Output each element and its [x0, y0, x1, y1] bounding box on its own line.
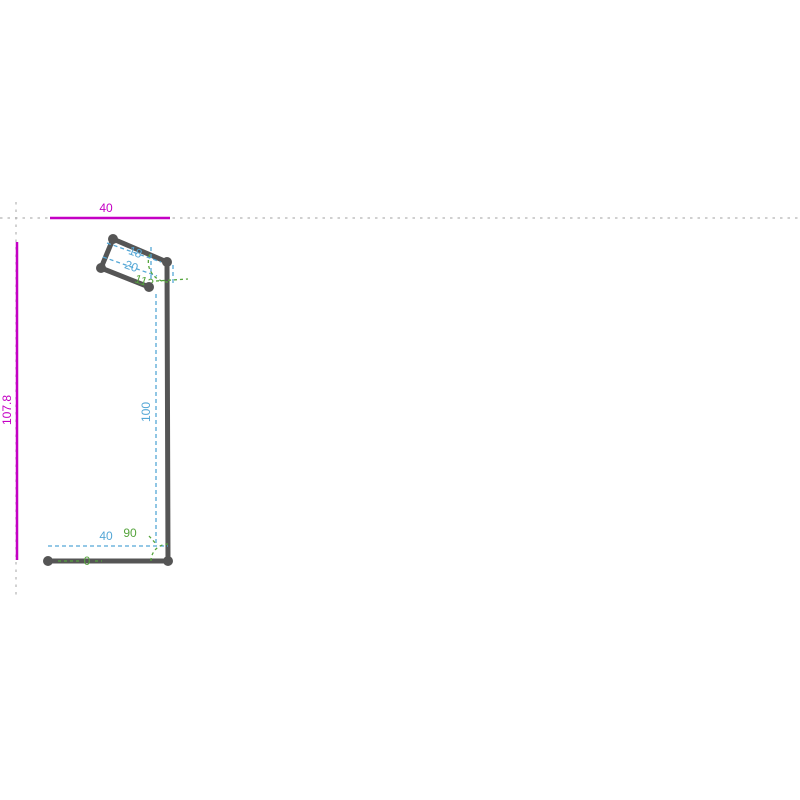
label-seg-web: 100: [139, 402, 153, 422]
label-angle-flange: 0: [84, 554, 91, 568]
vertex-dot-bottom-bend: [163, 556, 173, 566]
profile-drawing: 40 107.8 18 20 100 40 113 90 0: [0, 0, 800, 800]
label-seg-flange: 40: [99, 529, 113, 543]
label-angle-bottom-bend: 90: [123, 526, 137, 540]
vertex-dot-hem-bottom-left: [96, 263, 106, 273]
vertex-dot-flange-end: [43, 556, 53, 566]
label-overall-height: 107.8: [0, 395, 14, 425]
drawing-canvas[interactable]: 40 107.8 18 20 100 40 113 90 0: [0, 0, 800, 800]
label-overall-width: 40: [99, 201, 113, 215]
vertex-dot-hem-end: [144, 282, 154, 292]
vertex-dot-top-bend: [162, 257, 172, 267]
vertex-dot-hem-top-left: [108, 234, 118, 244]
